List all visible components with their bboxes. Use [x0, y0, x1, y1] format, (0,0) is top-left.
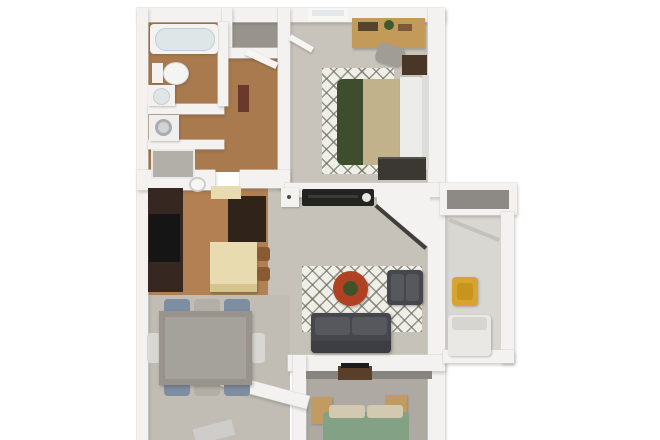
media-speaker	[362, 193, 371, 202]
kitchen-sink	[189, 177, 206, 192]
vanity-sink	[153, 88, 170, 105]
hall-cabinet	[238, 85, 249, 112]
kitchen-wall-top-b	[240, 170, 290, 188]
second-bedroom-plant	[402, 363, 428, 391]
bedroom-window-glass	[312, 10, 344, 16]
tv-screen	[341, 363, 369, 368]
tv-console	[338, 366, 372, 380]
bathroom-wall-right	[218, 22, 228, 106]
toilet-bowl	[163, 62, 189, 85]
coffee-table-center	[343, 281, 358, 296]
kitchen-island-side	[210, 284, 257, 292]
bar-stool-2	[257, 267, 270, 281]
bed-master-green-runner	[337, 79, 363, 165]
toilet-tank	[152, 63, 163, 83]
bed-master-headboard	[422, 75, 429, 169]
patio-chair-seat	[457, 283, 473, 300]
nightstand-master	[402, 55, 427, 75]
patio-wall-right	[501, 212, 514, 363]
bedroom-plant	[284, 156, 306, 182]
second-bed-pillow-2	[367, 405, 403, 418]
tv-cabinet-knob	[287, 195, 291, 199]
sofa-cushion-1	[315, 317, 350, 335]
sofa-cushion-2	[352, 317, 387, 335]
bathtub-basin	[155, 28, 215, 51]
armchair-cushion-2	[406, 274, 419, 301]
media-console-line	[308, 195, 358, 198]
range	[149, 214, 180, 262]
dining-table-top	[165, 317, 246, 379]
bar-stool-1	[257, 247, 270, 261]
armchair-cushion-1	[391, 274, 404, 301]
closet-floor	[224, 18, 280, 52]
bed-master-duvet	[363, 79, 400, 165]
patio-roof-inner	[447, 190, 509, 209]
second-bed-pillow-1	[329, 405, 365, 418]
desk-decor-box	[398, 24, 412, 31]
desk-decor-dark	[358, 22, 378, 31]
patio-lounge-back	[452, 317, 487, 330]
sofa-back	[311, 341, 391, 353]
desk-plant	[384, 20, 394, 30]
storage-closet	[151, 149, 195, 179]
dresser-master	[378, 157, 426, 180]
fridge	[228, 196, 266, 242]
washer-door	[155, 119, 172, 136]
floorplan-image	[0, 0, 660, 440]
wall-left	[137, 8, 148, 440]
upper-cabinet	[211, 186, 241, 199]
bathroom-divider-2	[148, 140, 224, 149]
dining-chair-right	[251, 333, 265, 363]
